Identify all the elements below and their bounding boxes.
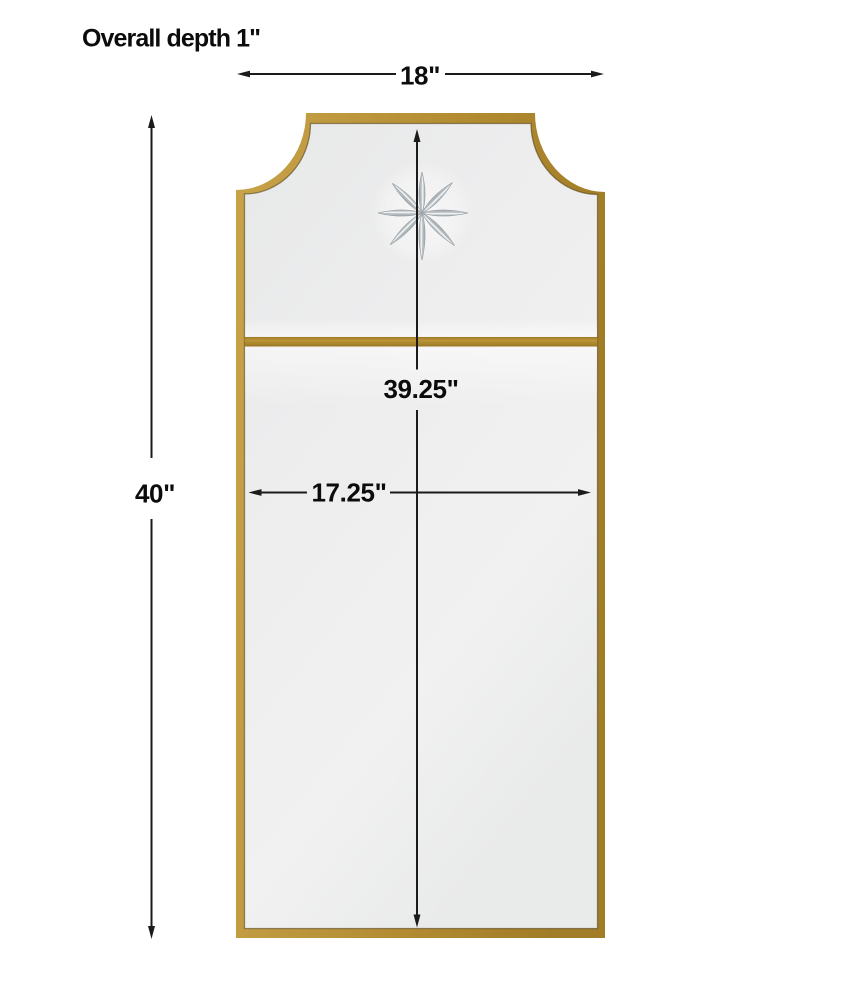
svg-text:18": 18"	[400, 61, 440, 91]
svg-text:Overall depth 1": Overall depth 1"	[82, 25, 260, 53]
svg-text:39.25": 39.25"	[384, 374, 459, 404]
svg-text:40": 40"	[135, 479, 175, 509]
svg-text:17.25": 17.25"	[312, 478, 387, 508]
